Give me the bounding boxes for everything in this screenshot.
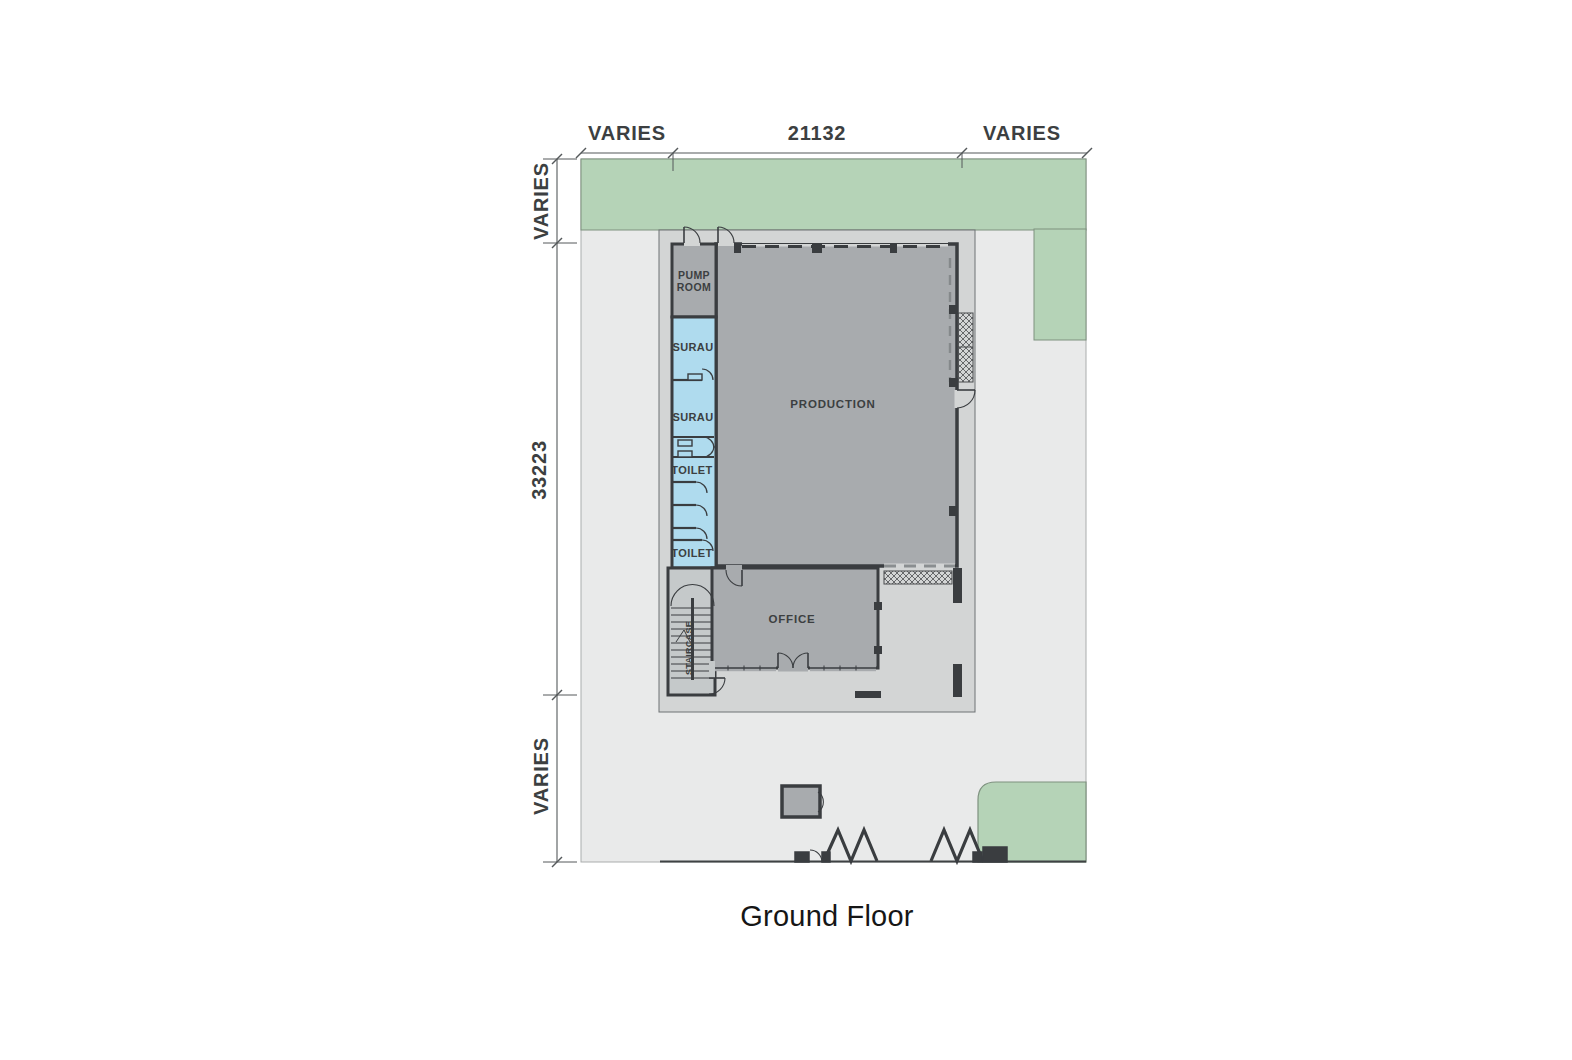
- pillar-south-1: [953, 568, 962, 603]
- toilet-2-label: TOILET: [671, 547, 712, 559]
- dim-left-bottom-label: VARIES: [530, 737, 553, 815]
- dim-left-center-label: 33223: [528, 440, 551, 500]
- production-label: PRODUCTION: [790, 398, 875, 410]
- dim-top-center-label: 21132: [788, 122, 847, 145]
- dock-south: [884, 564, 955, 585]
- dim-top-right-label: VARIES: [983, 122, 1061, 145]
- toilet-1-label: TOILET: [671, 464, 712, 476]
- surau-1-label: SURAU: [672, 341, 713, 353]
- car-stop: [855, 691, 881, 698]
- loading-hatch-south: [884, 571, 952, 584]
- pump-room-label: PUMP ROOM: [671, 269, 717, 293]
- dim-left-top-label: VARIES: [530, 162, 553, 240]
- surau-2-label: SURAU: [672, 411, 713, 423]
- dim-top-left-label: VARIES: [588, 122, 666, 145]
- drawing-title: Ground Floor: [740, 900, 913, 933]
- staircase-label: STAIRCASE: [684, 621, 694, 675]
- landscape-right: [1034, 229, 1086, 340]
- guard-house: [782, 786, 823, 817]
- pillar-south-2: [953, 664, 962, 697]
- office-label: OFFICE: [769, 613, 816, 625]
- floor-plan-canvas: VARIES 21132 VARIES VARIES 33223 VARIES …: [0, 0, 1572, 1060]
